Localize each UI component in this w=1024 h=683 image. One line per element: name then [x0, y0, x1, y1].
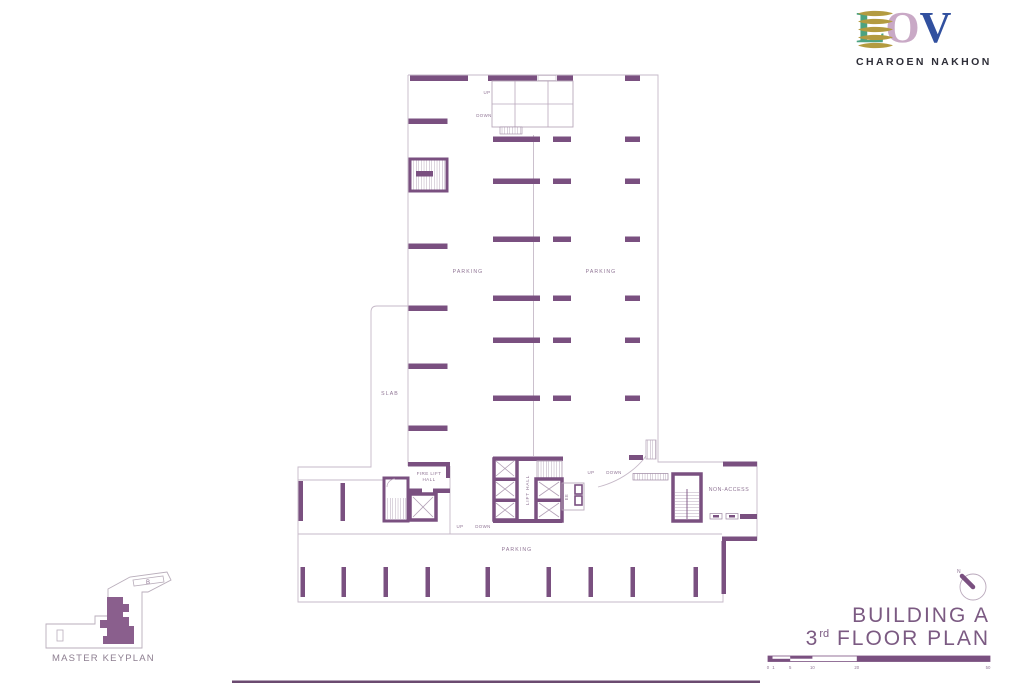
brand-subtitle: CHAROEN NAKHON [856, 56, 996, 68]
parking-label-bottom: PARKING [502, 547, 533, 553]
core-up-label: UP [457, 524, 464, 529]
floor-title: 3rd FLOOR PLAN [806, 625, 990, 643]
logo-letter-v: V [920, 8, 952, 48]
building-a-shape [100, 597, 134, 644]
floor-ordinal-suffix: rd [819, 628, 829, 640]
parking-label-left: PARKING [453, 269, 484, 275]
ramp-up-label: UP [484, 90, 491, 95]
core-down-label: DOWN [475, 524, 491, 529]
car-ramp [492, 81, 573, 134]
scale-tick-5: 5 [789, 665, 792, 670]
scale-tick-1: 1 [772, 665, 775, 670]
brand-logo: L O V CHAROEN NAKHON [856, 8, 996, 70]
page: PARKING PARKING PARKING SLAB NON-ACCESS … [0, 0, 1024, 683]
scale-ticks: 0 1 5 10 20 50 [767, 665, 991, 670]
scale-tick-50: 50 [986, 665, 991, 670]
scale-tick-20: 20 [854, 665, 859, 670]
lift-core [493, 457, 584, 524]
building-title: BUILDING A [806, 607, 990, 625]
logo-word: L O V [856, 8, 996, 48]
floor-plan-svg: PARKING PARKING PARKING SLAB NON-ACCESS … [0, 0, 1024, 683]
ramp2-up-label: UP [588, 470, 595, 475]
fire-lift-hall-label-1: FIRE LIFT [417, 471, 442, 476]
logo-leaf-stack-icon [858, 10, 894, 52]
ee-label: EE [564, 494, 569, 500]
tower-left-stair [410, 159, 447, 191]
master-keyplan: B [46, 572, 171, 648]
non-access-label: NON-ACCESS [709, 487, 750, 493]
parking-label-right: PARKING [586, 269, 617, 275]
scale-bar: 0 1 5 10 20 50 [767, 656, 991, 670]
lift-hall-label: LIFT HALL [525, 475, 531, 505]
ramp-down-label: DOWN [476, 113, 492, 118]
bottom-parking-stalls [301, 567, 699, 597]
slab-label: SLAB [381, 391, 399, 397]
ramp2-down-label: DOWN [606, 470, 622, 475]
fire-lift-hall-label-2: HALL [422, 477, 435, 482]
master-keyplan-label: MASTER KEYPLAN [52, 653, 155, 664]
scale-tick-0: 0 [767, 665, 770, 670]
building-b-label: B [146, 580, 150, 586]
compass-n-label: N [957, 569, 961, 575]
tower-walls [409, 76, 644, 461]
title-block: BUILDING A 3rd FLOOR PLAN [806, 607, 990, 643]
scale-tick-10: 10 [810, 665, 815, 670]
compass-icon: N [957, 569, 986, 600]
gate-opening [538, 76, 556, 81]
